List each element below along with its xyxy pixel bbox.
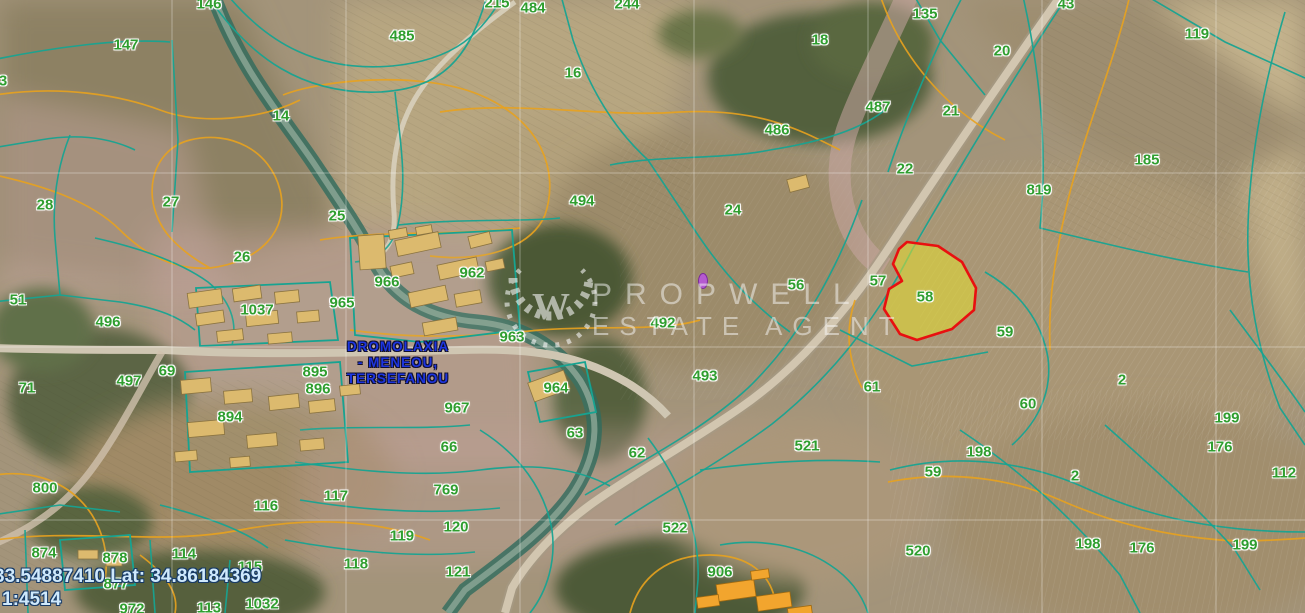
place-label: DROMOLAXIA - MENEOU, TERSEFANOU: [347, 339, 449, 387]
place-label-line2: - MENEOU,: [347, 355, 449, 371]
place-label-line1: DROMOLAXIA: [347, 339, 449, 355]
coordinates-readout: 33.54887410 Lat: 34.86184369: [0, 566, 261, 588]
svg-text:W: W: [532, 286, 570, 328]
scale-readout: 1:4514: [2, 589, 61, 611]
place-label-line3: TERSEFANOU: [347, 371, 449, 387]
location-marker-icon[interactable]: [699, 274, 708, 289]
satellite-terrain: W: [0, 0, 1305, 613]
map-canvas[interactable]: W 14614734852154842441649414272825261848…: [0, 0, 1305, 613]
